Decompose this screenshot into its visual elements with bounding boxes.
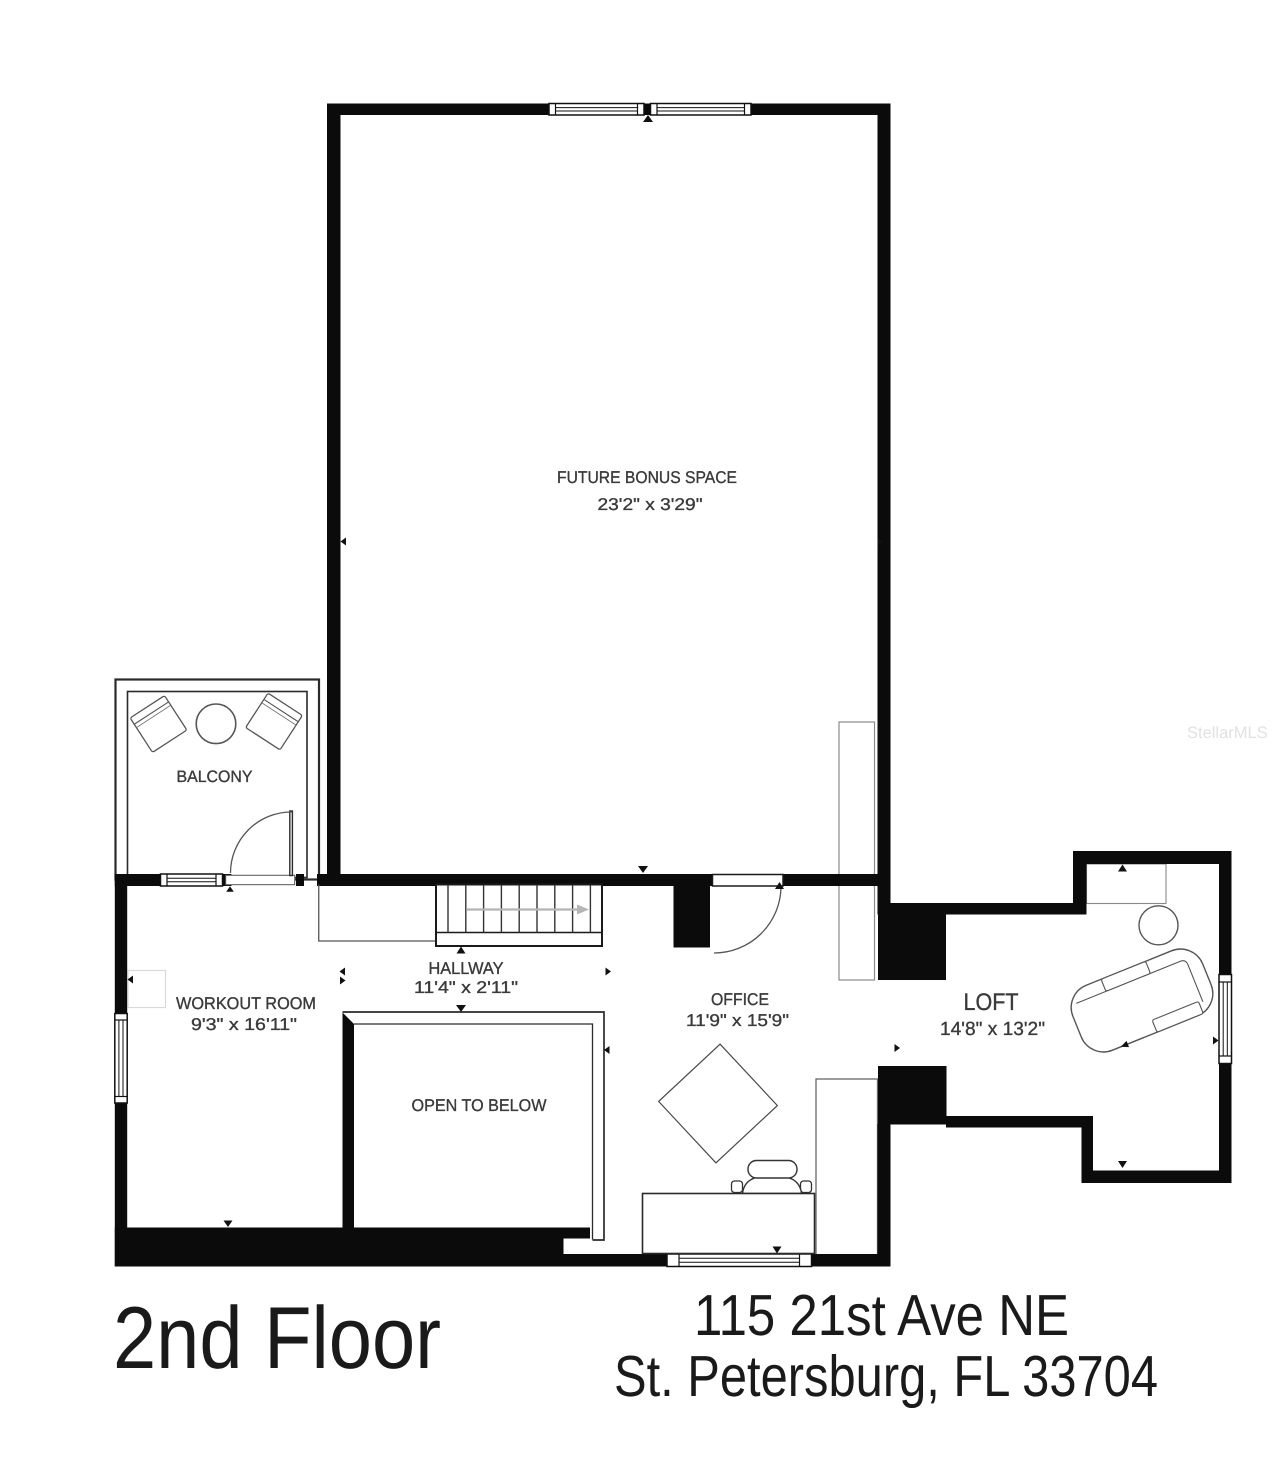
svg-text:BALCONY: BALCONY — [176, 768, 252, 786]
svg-text:23'2" x 3'29": 23'2" x 3'29" — [598, 495, 703, 514]
svg-text:11'9" x 15'9": 11'9" x 15'9" — [686, 1011, 789, 1030]
svg-text:WORKOUT ROOM: WORKOUT ROOM — [176, 994, 316, 1013]
svg-text:StellarMLS: StellarMLS — [1187, 724, 1268, 742]
svg-text:OFFICE: OFFICE — [711, 990, 769, 1009]
svg-text:11'4" x 2'11": 11'4" x 2'11" — [414, 978, 518, 997]
svg-text:HALLWAY: HALLWAY — [429, 959, 504, 978]
svg-text:OPEN TO BELOW: OPEN TO BELOW — [412, 1096, 547, 1115]
svg-text:14'8" x 13'2": 14'8" x 13'2" — [940, 1019, 1045, 1040]
svg-text:St. Petersburg, FL 33704: St. Petersburg, FL 33704 — [614, 1344, 1158, 1409]
svg-text:LOFT: LOFT — [964, 989, 1019, 1016]
svg-text:115 21st Ave NE: 115 21st Ave NE — [694, 1283, 1069, 1348]
svg-text:2nd Floor: 2nd Floor — [113, 1288, 441, 1387]
svg-text:9'3" x 16'11": 9'3" x 16'11" — [191, 1015, 297, 1034]
svg-text:FUTURE BONUS SPACE: FUTURE BONUS SPACE — [557, 468, 737, 487]
